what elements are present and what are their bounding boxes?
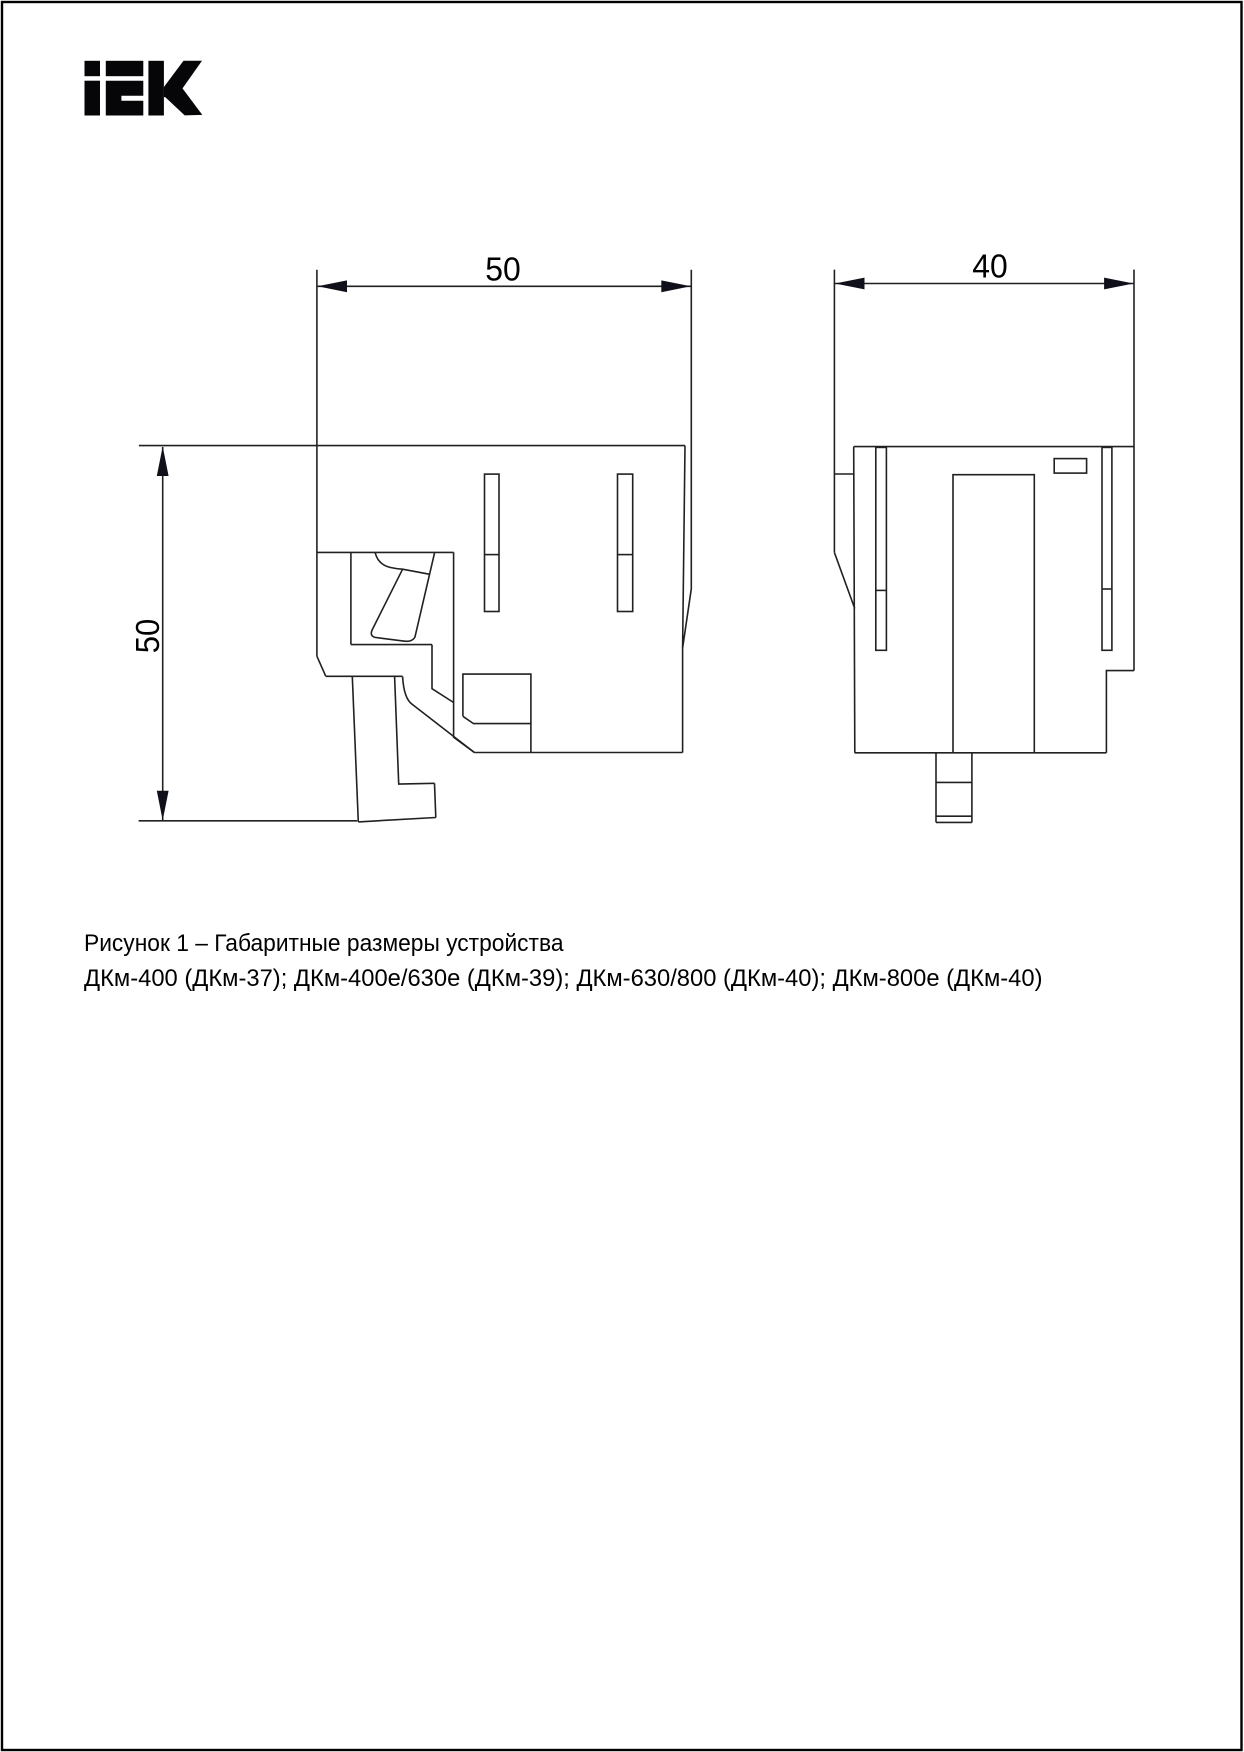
svg-text:50: 50 — [129, 619, 166, 654]
svg-text:50: 50 — [485, 251, 521, 288]
svg-text:40: 40 — [972, 248, 1008, 285]
svg-text:Рисунок 1 – Габаритные размеры: Рисунок 1 – Габаритные размеры устройств… — [84, 930, 564, 957]
svg-text:ДКм-400 (ДКм-37); ДКм-400е/630: ДКм-400 (ДКм-37); ДКм-400е/630е (ДКм-39)… — [84, 965, 1043, 992]
